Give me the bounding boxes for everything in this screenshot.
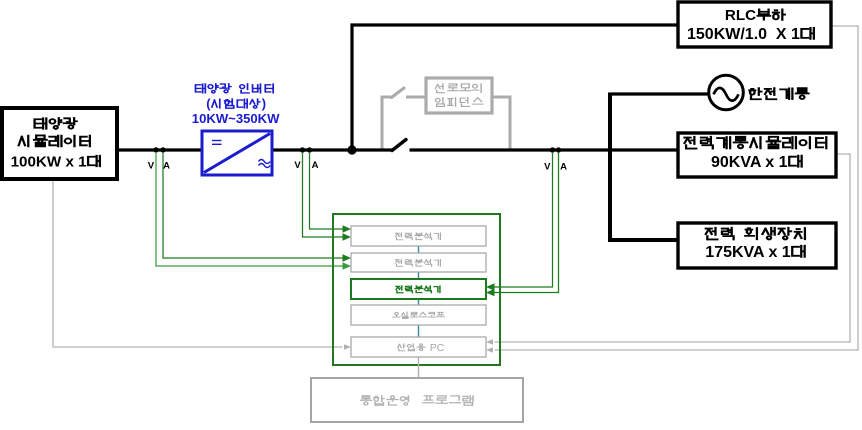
svg-text:V: V <box>148 161 155 172</box>
svg-text:10KW~350KW: 10KW~350KW <box>192 111 280 126</box>
svg-text:150KW/1.0 X 1: 150KW/1.0 X 1 <box>687 26 800 43</box>
svg-text:A: A <box>163 161 170 172</box>
svg-text:RLC: RLC <box>725 7 756 24</box>
svg-text:A: A <box>312 160 319 171</box>
svg-text:): ) <box>262 96 266 111</box>
svg-text:V: V <box>294 160 301 171</box>
svg-text:PC: PC <box>430 342 445 354</box>
svg-text:A: A <box>560 162 567 173</box>
svg-text:100KW x 1: 100KW x 1 <box>11 154 88 171</box>
svg-text:175KVA x 1: 175KVA x 1 <box>705 244 790 261</box>
svg-text:V: V <box>544 162 551 173</box>
svg-text:90KVA x 1: 90KVA x 1 <box>711 154 788 171</box>
svg-text:(: ( <box>206 96 211 111</box>
